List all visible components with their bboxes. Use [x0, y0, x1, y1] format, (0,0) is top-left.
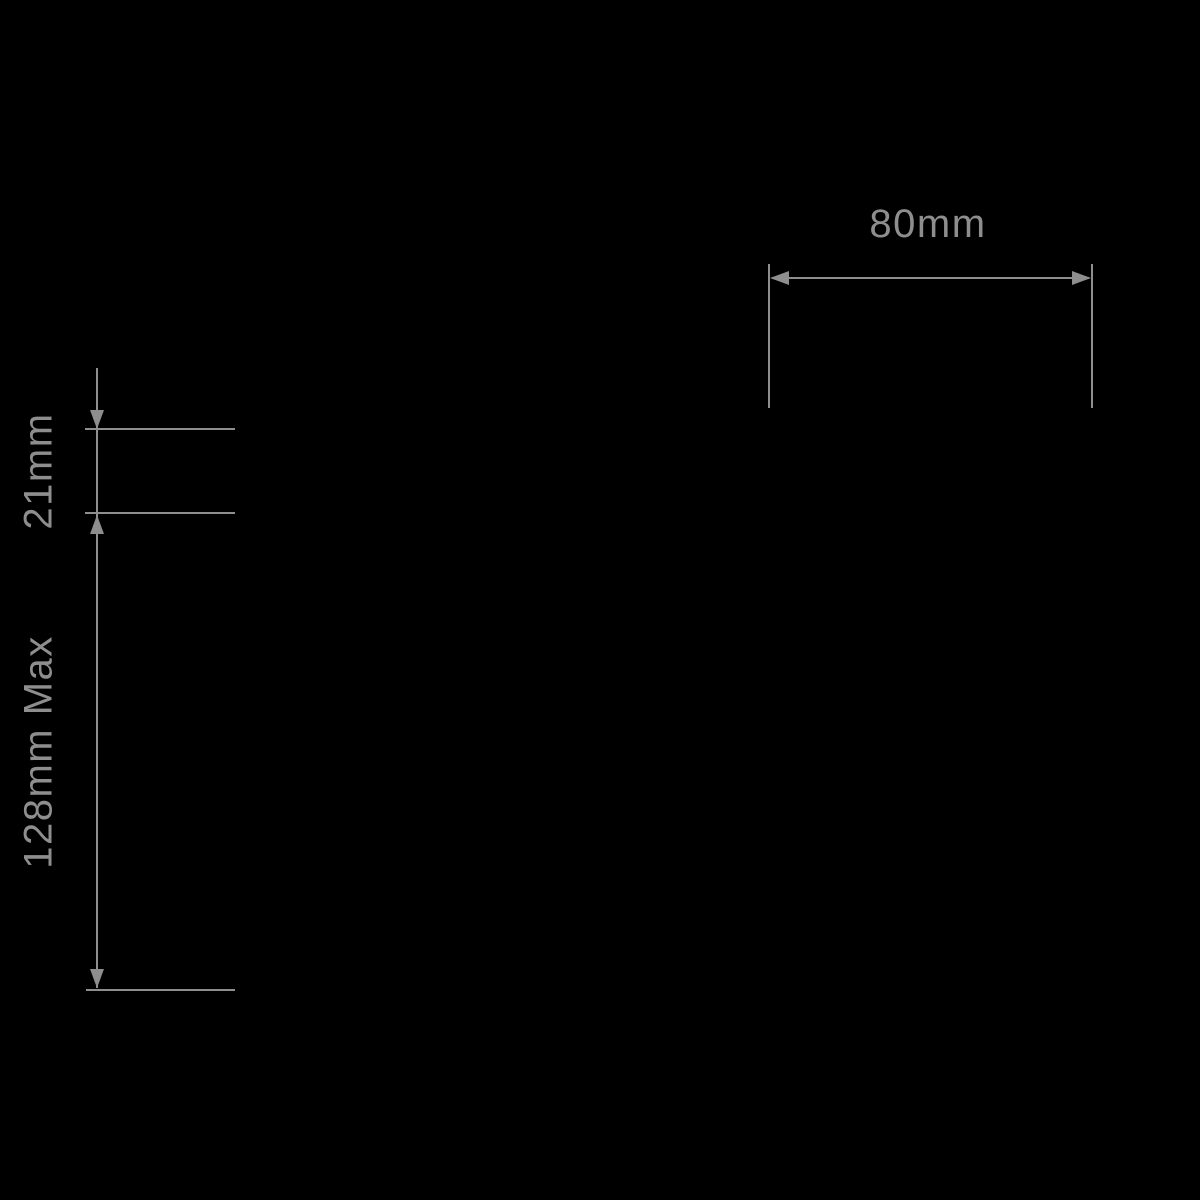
arrowhead-down-top-icon: [90, 410, 104, 429]
dimension-height-label: 128mm Max: [17, 635, 61, 869]
dimension-width-label: 80mm: [869, 202, 986, 246]
dimension-thickness-label: 21mm: [17, 412, 61, 529]
dimension-vertical-group: 21mm 128mm Max: [17, 368, 235, 990]
arrowhead-up-icon: [90, 515, 104, 534]
dimension-diagram: 80mm 21mm 128mm Max: [0, 0, 1200, 1200]
dimension-drawing-canvas: 80mm 21mm 128mm Max: [0, 0, 1200, 1200]
dimension-width-80mm: 80mm: [769, 202, 1092, 408]
arrowhead-left-icon: [770, 271, 789, 285]
arrowhead-right-icon: [1072, 271, 1091, 285]
arrowhead-down-bottom-icon: [90, 969, 104, 988]
